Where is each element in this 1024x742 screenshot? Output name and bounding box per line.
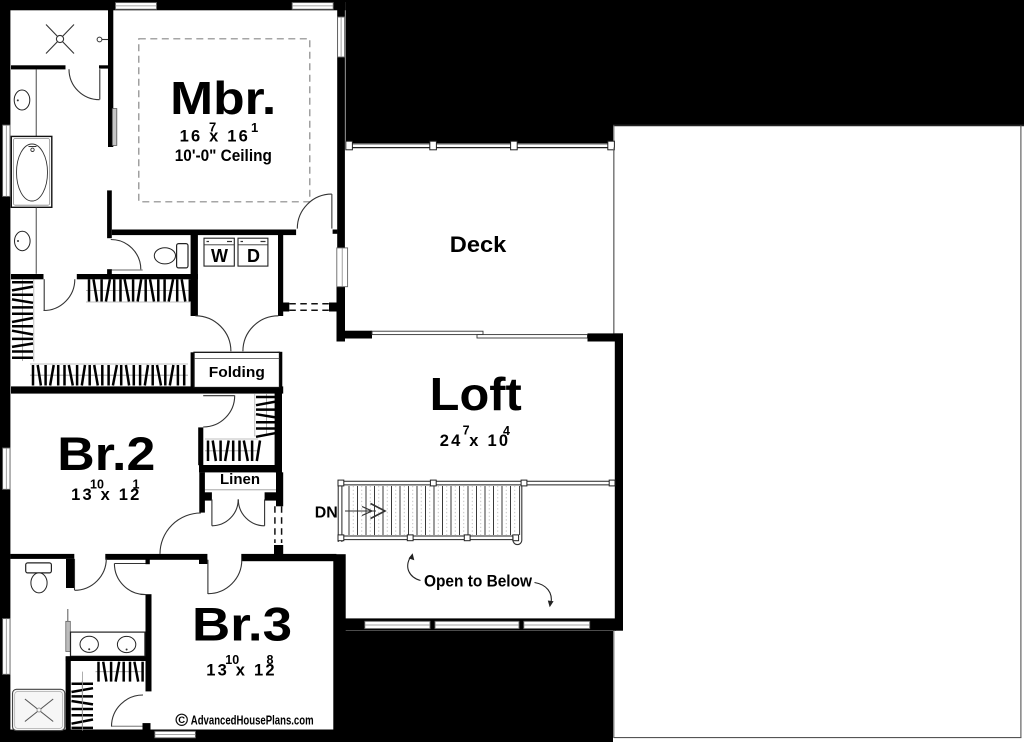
svg-text:AdvancedHousePlans.com: AdvancedHousePlans.com xyxy=(191,713,314,728)
svg-text:Br.3: Br.3 xyxy=(192,598,292,651)
svg-text:Mbr.: Mbr. xyxy=(170,72,276,124)
svg-text:24 x 10: 24 x 10 xyxy=(440,432,510,450)
svg-text:7: 7 xyxy=(209,119,216,134)
svg-text:1: 1 xyxy=(251,120,258,135)
svg-text:8: 8 xyxy=(267,653,274,667)
svg-text:Br.2: Br.2 xyxy=(57,427,155,480)
svg-text:7: 7 xyxy=(463,424,470,438)
svg-text:13 x 12: 13 x 12 xyxy=(71,486,141,504)
svg-text:C: C xyxy=(178,715,185,726)
svg-text:4: 4 xyxy=(503,424,510,438)
svg-text:Linen: Linen xyxy=(220,471,260,488)
svg-text:D: D xyxy=(247,245,260,266)
svg-text:Loft: Loft xyxy=(430,368,522,420)
svg-text:Folding: Folding xyxy=(209,364,265,381)
svg-text:1: 1 xyxy=(133,478,140,492)
svg-text:10'-0" Ceiling: 10'-0" Ceiling xyxy=(175,146,272,165)
svg-text:Deck: Deck xyxy=(450,232,507,257)
svg-text:W: W xyxy=(211,245,229,266)
svg-text:10: 10 xyxy=(225,653,239,667)
svg-text:Open to Below: Open to Below xyxy=(424,572,533,591)
svg-text:10: 10 xyxy=(90,478,104,492)
svg-text:DN: DN xyxy=(315,505,338,522)
